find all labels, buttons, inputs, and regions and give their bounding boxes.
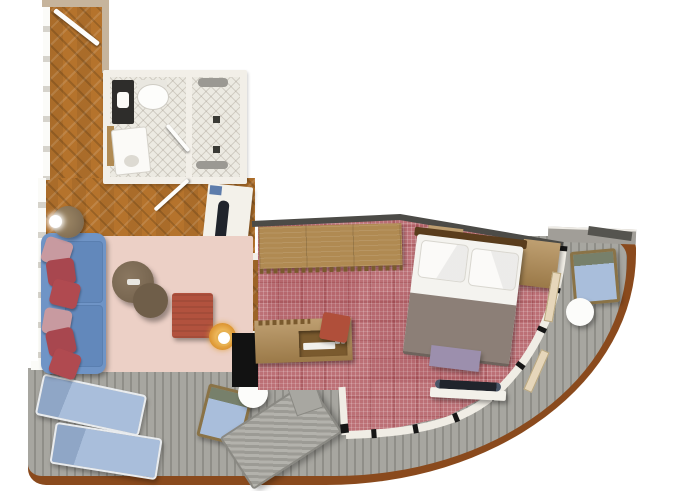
bathroom-vanity-cabinet bbox=[112, 80, 134, 124]
red-ottoman bbox=[172, 293, 213, 338]
sink-basin bbox=[123, 154, 139, 168]
floor-lamp bbox=[52, 206, 84, 238]
floor-plan bbox=[0, 0, 680, 491]
gold-lamp-glow bbox=[216, 330, 232, 346]
bathroom-block bbox=[103, 70, 247, 184]
desk-rail-detail bbox=[258, 319, 310, 326]
bed-pillow-right bbox=[467, 248, 519, 292]
soap-dispenser bbox=[117, 92, 129, 108]
wardrobe bbox=[258, 223, 402, 269]
bed-pillow-left bbox=[417, 239, 469, 283]
hallway-left-wall bbox=[43, 2, 50, 180]
shower-drain-2 bbox=[213, 146, 220, 153]
shower-drain-1 bbox=[213, 116, 220, 123]
shower-fixture-bottom bbox=[196, 161, 228, 169]
sofa bbox=[41, 233, 106, 374]
sink-unit bbox=[111, 126, 152, 176]
floor-lamp-glow bbox=[49, 215, 62, 228]
desk-tray bbox=[303, 342, 335, 350]
shower-fixture-top bbox=[198, 78, 228, 87]
deck-round-table-2 bbox=[566, 298, 594, 326]
table-tray bbox=[127, 279, 140, 285]
coffee-table-small bbox=[133, 283, 168, 318]
entrance-top-wall bbox=[42, 0, 109, 7]
desk-chair bbox=[319, 312, 351, 343]
toilet bbox=[137, 84, 169, 110]
double-bed bbox=[400, 227, 528, 368]
hallway-right-wall bbox=[102, 5, 109, 73]
blue-deco-item bbox=[209, 185, 222, 195]
